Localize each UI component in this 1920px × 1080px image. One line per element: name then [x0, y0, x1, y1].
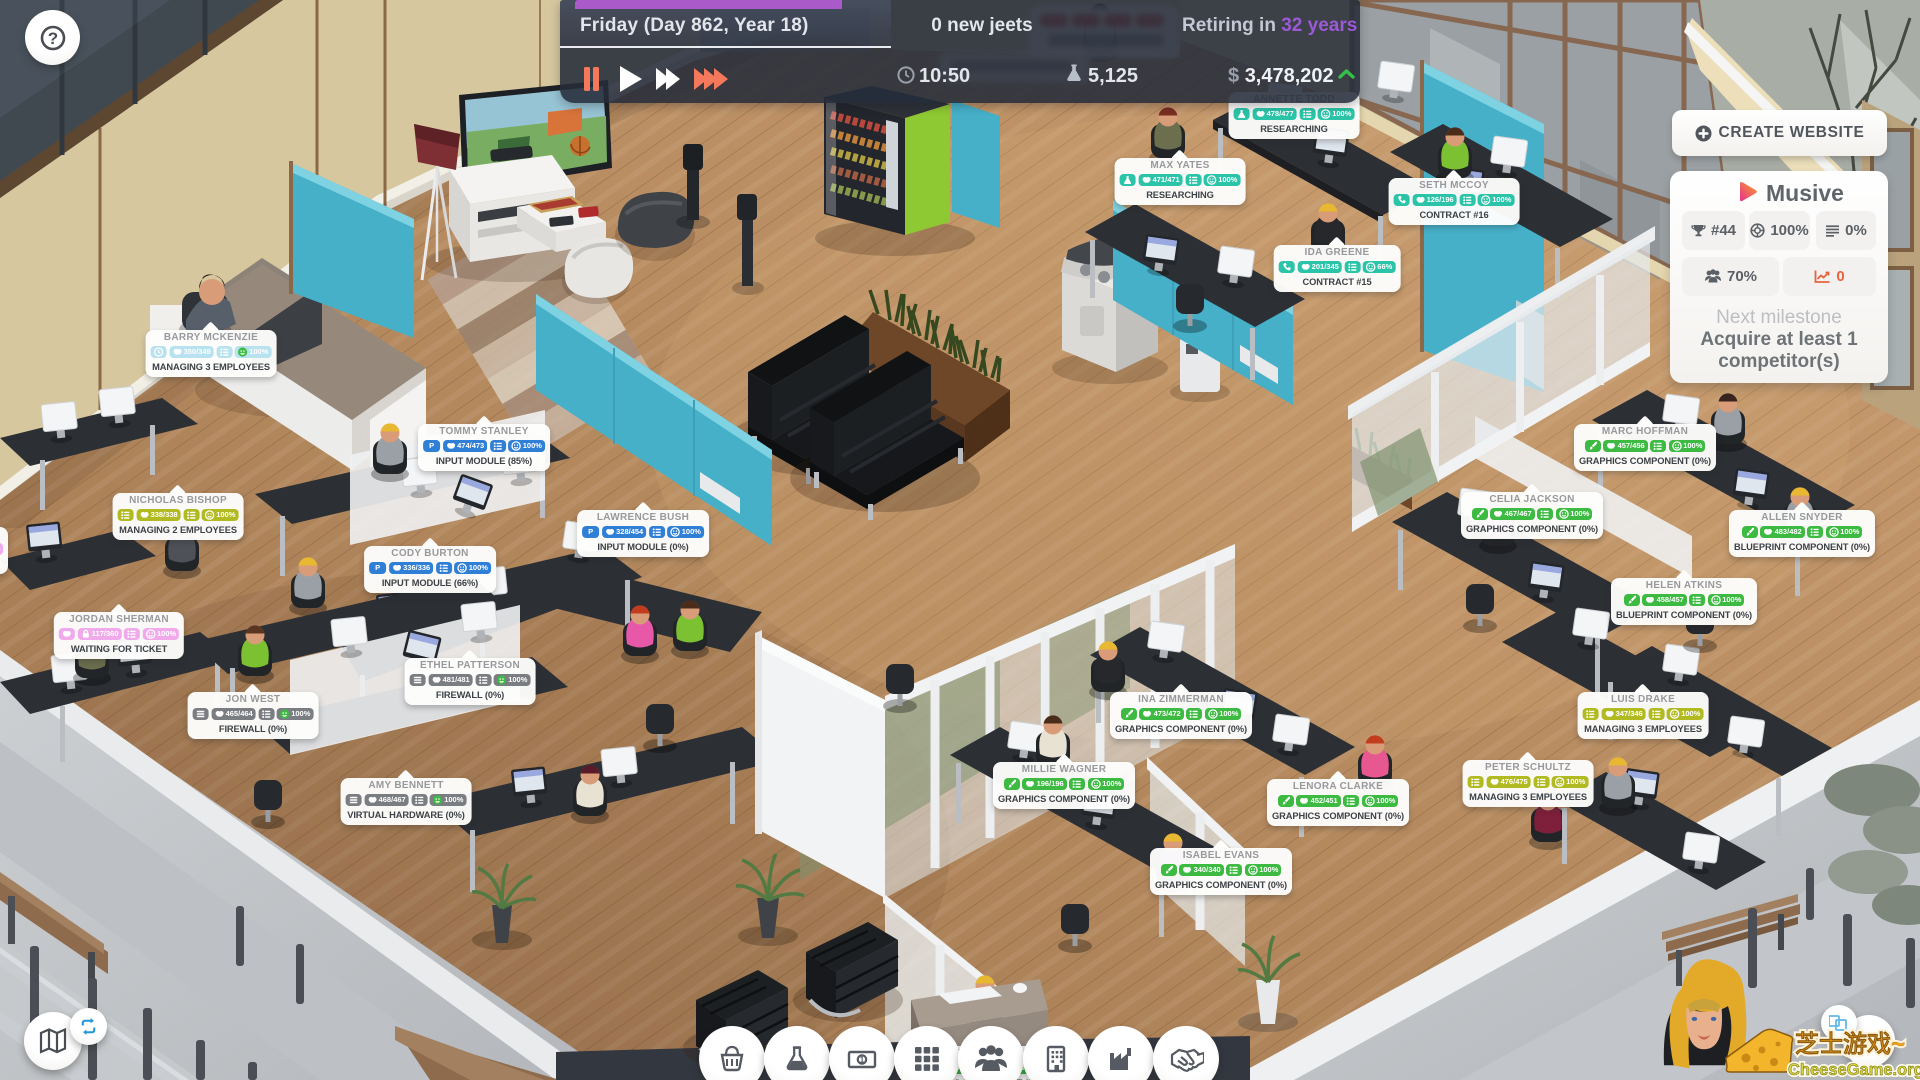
svg-text:1: 1 [860, 1055, 865, 1064]
svg-text:芝士游戏~: 芝士游戏~ [1795, 1030, 1905, 1058]
svg-text:CheeseGame.org: CheeseGame.org [1788, 1061, 1920, 1079]
svg-text:?: ? [47, 29, 57, 48]
